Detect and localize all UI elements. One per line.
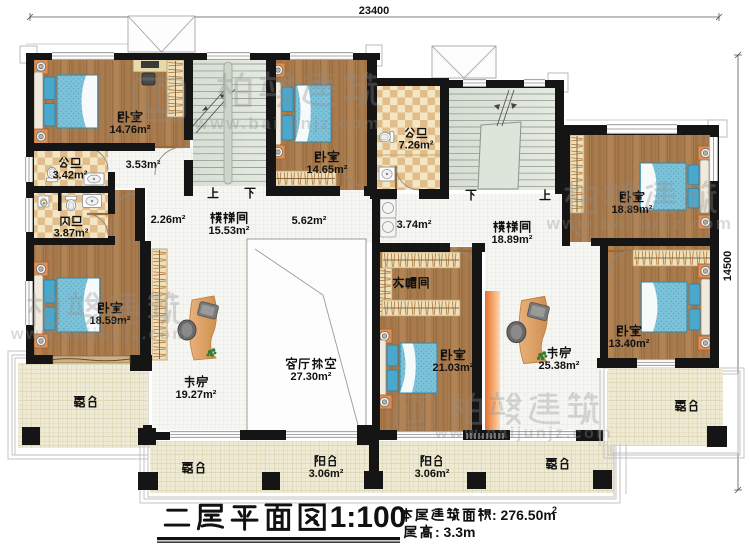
svg-text:13.40m²: 13.40m² bbox=[609, 338, 650, 350]
svg-text:2.26m²: 2.26m² bbox=[151, 214, 186, 226]
svg-text:21.03m²: 21.03m² bbox=[433, 362, 474, 374]
svg-text:3.74m²: 3.74m² bbox=[397, 219, 432, 231]
svg-text:19.27m²: 19.27m² bbox=[176, 389, 217, 401]
svg-text:15.53m²: 15.53m² bbox=[209, 225, 250, 237]
svg-text:7.26m²: 7.26m² bbox=[399, 140, 434, 152]
svg-text:23400: 23400 bbox=[359, 5, 390, 17]
svg-text:www.baijunjz.com: www.baijunjz.com bbox=[546, 214, 734, 233]
svg-text:3.06m²: 3.06m² bbox=[415, 468, 450, 480]
svg-text:: 3.3m: : 3.3m bbox=[435, 524, 475, 540]
svg-text:2: 2 bbox=[552, 505, 557, 515]
svg-text:3.87m²: 3.87m² bbox=[54, 228, 89, 240]
svg-text:3.06m²: 3.06m² bbox=[309, 468, 344, 480]
svg-text:5.62m²: 5.62m² bbox=[292, 215, 327, 227]
svg-text:www.baijunjz.com: www.baijunjz.com bbox=[10, 326, 189, 343]
svg-text:14.65m²: 14.65m² bbox=[307, 164, 348, 176]
svg-text:18.89m²: 18.89m² bbox=[492, 234, 533, 246]
svg-text:www.baijunjz.com: www.baijunjz.com bbox=[434, 425, 613, 442]
svg-text:27.30m²: 27.30m² bbox=[291, 371, 332, 383]
svg-text:: 276.50m: : 276.50m bbox=[492, 507, 556, 523]
svg-text:www.baijunjz.com: www.baijunjz.com bbox=[194, 114, 382, 133]
svg-text:25.38m²: 25.38m² bbox=[539, 360, 580, 372]
svg-text:14.76m²: 14.76m² bbox=[110, 124, 151, 136]
svg-text:1:100: 1:100 bbox=[330, 501, 407, 534]
svg-text:14500: 14500 bbox=[722, 251, 734, 282]
svg-text:3.42m²: 3.42m² bbox=[53, 170, 88, 182]
